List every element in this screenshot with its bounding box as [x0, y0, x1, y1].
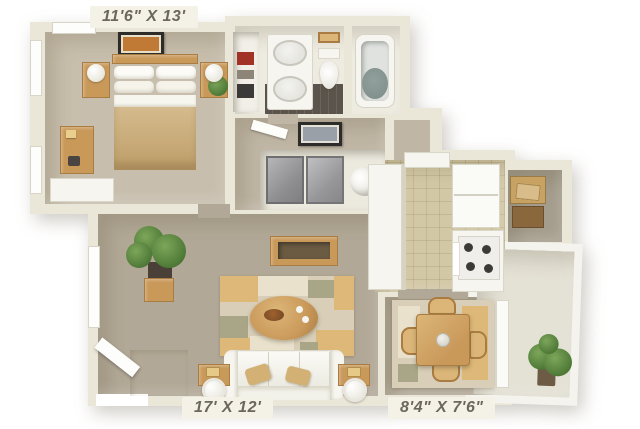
pillow [114, 66, 154, 79]
end-table-right [338, 364, 370, 402]
decor-cup [302, 316, 309, 323]
rug-patch [258, 276, 308, 296]
bathroom-doorway [268, 114, 298, 124]
bedroom-doorway [198, 204, 230, 218]
cube-side-table [144, 278, 174, 302]
living-room-dimension-label: 17' X 12' [182, 397, 273, 419]
vanity-double-sink [267, 34, 313, 110]
storage-box [515, 183, 541, 201]
bed-sheet [114, 95, 196, 107]
nightstand-lamp-right [205, 64, 223, 82]
stove-cooktop [458, 236, 500, 280]
sliding-closet-door [306, 156, 344, 204]
kitchen-upper-cabinet [404, 152, 450, 168]
decor-bowl [264, 309, 284, 321]
table-centerpiece [436, 333, 450, 347]
floor-plan: 11'6" X 13' 17' X 12' 8'4" X 7'6" [0, 0, 640, 429]
living-window-left [88, 246, 100, 328]
refrigerator [452, 164, 500, 228]
plant-foliage [126, 242, 152, 268]
tub-divider-wall [344, 26, 352, 114]
rug-patch [220, 316, 248, 338]
dining-dimension-label: 8'4" X 7'6" [388, 397, 495, 419]
nightstand-lamp-left [87, 64, 105, 82]
rug-patch [308, 280, 334, 298]
sliding-closet-door [266, 156, 304, 204]
dining-chair [469, 331, 487, 359]
living-plant [126, 224, 186, 280]
floor-lamp [343, 378, 367, 402]
oven-towel [452, 242, 460, 276]
pillow [156, 66, 196, 79]
pillow [156, 81, 196, 93]
console-bench [270, 236, 338, 266]
bedroom-window-left-lower [30, 146, 42, 194]
bathtub-water [362, 68, 388, 99]
bedroom-wall-art [118, 32, 164, 56]
coffee-table [250, 296, 318, 340]
console-inset [278, 242, 330, 259]
sink-basin [273, 76, 307, 102]
stove-burner [464, 243, 473, 252]
laundry-closet [260, 150, 385, 210]
end-table-item [206, 367, 220, 377]
storage-box [512, 206, 544, 228]
bedroom-window-left-upper [30, 40, 42, 96]
patio-door [496, 300, 509, 388]
dining-chair [428, 297, 456, 315]
kitchen-peninsula-counter [368, 164, 406, 290]
decor-cup [296, 306, 303, 313]
shelf-basket [318, 32, 340, 43]
plant-foliage [152, 234, 186, 268]
sofa [224, 350, 344, 400]
dresser-item [66, 130, 76, 138]
pillow [114, 81, 154, 93]
bedroom-low-cabinet [50, 178, 114, 202]
closet-shelf-item-red [237, 52, 254, 65]
stove-burner [482, 245, 491, 254]
fridge-divider [454, 194, 498, 196]
bed-blanket [114, 107, 196, 170]
bedroom-dresser [60, 126, 94, 174]
bathtub [355, 34, 395, 108]
rug-patch [398, 364, 418, 382]
dresser-item [68, 156, 80, 166]
stove-burner [466, 262, 475, 271]
closet-shelf-item [237, 70, 254, 79]
rug-patch [220, 276, 258, 302]
headboard [112, 54, 198, 64]
hall-wall-art [298, 122, 342, 146]
entry-tile-floor [130, 350, 188, 396]
dining-chair [432, 364, 460, 382]
dining-table [416, 314, 470, 366]
apartment-plan [0, 0, 640, 429]
bedroom-dimension-label: 11'6" X 13' [90, 6, 198, 28]
closet-shelf-item-dark [237, 84, 254, 98]
balcony-plant [523, 333, 575, 391]
toilet-tank [318, 48, 340, 59]
rug-patch [334, 276, 354, 310]
bed [112, 54, 198, 170]
linen-closet [233, 32, 259, 112]
sink-basin [273, 40, 307, 66]
end-table-item [347, 367, 361, 377]
stove-burner [484, 264, 493, 273]
